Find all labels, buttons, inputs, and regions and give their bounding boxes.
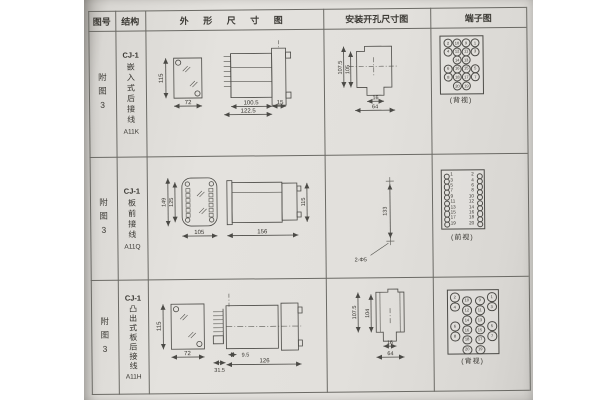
header-install: 安装开孔尺寸图 — [323, 12, 430, 26]
terminal-pin: 1 — [487, 292, 497, 302]
terminal-pin: 6 — [450, 322, 460, 332]
front-view — [174, 58, 202, 98]
dim-inner-height: 105 — [345, 65, 351, 74]
structure-code: A11Q — [124, 243, 140, 250]
structure-model: CJ-1 — [122, 51, 138, 60]
terminal-number: 19 — [451, 221, 462, 226]
dim-front-height: 115 — [157, 321, 163, 331]
terminal-pin: 19 — [475, 345, 485, 355]
grid-line — [90, 153, 528, 158]
terminal-pin: 19 — [462, 81, 471, 90]
terminal-view-label-row3: (背视) — [443, 356, 503, 367]
terminal-pin: 3 — [471, 47, 480, 56]
structure-model: CJ-1 — [124, 186, 140, 195]
terminal-pin: 4 — [444, 47, 453, 56]
cell-fig-no-row1: 附图3 — [89, 32, 115, 155]
grid-line — [526, 7, 531, 391]
header-fig-no: 图号 — [88, 15, 115, 28]
structure-code: A11K — [124, 129, 139, 136]
header-structure: 结构 — [115, 14, 145, 27]
dim-side-length: 156 — [257, 229, 268, 235]
structure-code: A11H — [126, 373, 142, 380]
cell-structure-row2: CJ-1 板前接线 A11Q — [118, 158, 147, 277]
terminal-pin: 10 — [452, 38, 461, 47]
grid-line — [88, 27, 526, 32]
dim-hole-pitch: 133 — [383, 207, 389, 216]
terminal-pin: 20 — [462, 345, 472, 355]
install-drawing-row1: 107.5 105 16 64 — [336, 39, 422, 115]
dim-offset: 9.5 — [242, 352, 250, 358]
terminal-view-label-row1: (背视) — [433, 95, 489, 106]
dim-comb-width: 31.5 — [214, 368, 225, 374]
dim-front-width: 72 — [184, 351, 191, 357]
terminal-pin: 8 — [450, 332, 460, 342]
dim-total-length: 122.5 — [241, 108, 257, 114]
dim-outer-height: 149 — [161, 198, 167, 207]
terminal-pin: 12 — [462, 306, 472, 316]
structure-type: 嵌入式后接线 — [125, 63, 137, 126]
dim-body-length: 100.5 — [244, 100, 260, 106]
dim-hole-note: 2-Φ5 — [355, 257, 367, 263]
terminal-number: 1 — [450, 173, 461, 178]
terminal-pin: 7 — [471, 73, 480, 82]
dim-opening-width: 64 — [372, 104, 378, 110]
terminal-view-label-row2: (前视) — [434, 232, 490, 243]
terminal-pin: 9 — [475, 296, 485, 306]
dim-body-length: 126 — [260, 358, 271, 364]
header-outline: 外 形 尺 寸 图 — [145, 13, 323, 28]
side-view — [213, 293, 303, 351]
install-drawing-row2: 133 2-Φ5 — [348, 171, 429, 267]
outline-drawing-row2: 149 125 105 156 115 — [152, 168, 323, 262]
terminal-pin: 13 — [462, 56, 471, 65]
dim-flange-depth: 15 — [277, 100, 284, 106]
outline-drawing-row3: 115 72 31.5 9.5 126 — [153, 288, 324, 380]
terminal-pin: 8 — [444, 73, 453, 82]
dim-width: 105 — [194, 230, 205, 236]
terminal-pin: 4 — [450, 302, 460, 312]
terminal-pin: 1 — [470, 38, 479, 47]
terminal-pin — [477, 221, 483, 227]
terminal-pin: 15 — [475, 325, 485, 335]
structure-type: 凸出式板后接线 — [127, 305, 139, 372]
grid-line — [92, 390, 530, 395]
side-view — [227, 180, 301, 225]
terminal-diagram-row2: 1234567891011121314151617181920 — [441, 169, 486, 229]
cell-structure-row1: CJ-1 嵌入式后接线 A11K — [116, 31, 145, 154]
terminal-pin: 17 — [475, 335, 485, 345]
terminal-pin: 14 — [462, 315, 472, 325]
cell-fig-no-row2: 附图3 — [91, 159, 117, 278]
front-view — [171, 304, 204, 349]
outline-drawing-row1: 115 72 100.5 15 122.5 — [148, 40, 299, 121]
terminal-pin: 5 — [487, 322, 497, 332]
fig-no-text: 附图3 — [97, 197, 109, 239]
dim-front-height: 115 — [159, 73, 165, 83]
dim-slot-width: 16 — [387, 340, 393, 346]
dim-inner-height: 125 — [169, 198, 175, 207]
terminal-pin: 9 — [461, 38, 470, 47]
dim-slot-width: 16 — [372, 95, 378, 101]
terminal-pin: 20 — [453, 81, 462, 90]
dim-front-width: 72 — [185, 100, 192, 106]
dim-opening-width: 64 — [387, 351, 393, 357]
document-page: 图号 结构 外 形 尺 寸 图 安装开孔尺寸图 端子图 附图3 CJ-1 嵌入式… — [0, 0, 600, 400]
terminal-pin: 2 — [450, 292, 460, 302]
terminal-pin — [444, 222, 450, 228]
terminal-pin: 7 — [487, 331, 497, 341]
terminal-pin: 14 — [453, 56, 462, 65]
cell-structure-row3: CJ-1 凸出式板后接线 A11H — [119, 281, 148, 392]
terminal-diagram-row3: 2109141211314136161558181772019 — [447, 289, 500, 354]
terminal-number: 20 — [463, 221, 474, 226]
grid-line — [91, 276, 529, 281]
terminal-pin: 3 — [487, 302, 497, 312]
header-terminal: 端子图 — [430, 11, 526, 25]
terminal-pin: 11 — [475, 306, 485, 316]
side-view — [223, 40, 291, 106]
terminal-pin: 10 — [462, 296, 472, 306]
structure-type: 板前接线 — [126, 198, 137, 240]
structure-model: CJ-1 — [125, 294, 141, 303]
fig-no-text: 附图3 — [99, 316, 111, 358]
grid-line — [323, 9, 328, 393]
front-view — [182, 178, 217, 226]
terminal-pin: 18 — [462, 335, 472, 345]
terminal-diagram-row1: 2109141211314136161558181772019 — [439, 35, 484, 94]
dim-outer-height: 107.5 — [352, 306, 358, 320]
table-sheet: 图号 结构 外 形 尺 寸 图 安装开孔尺寸图 端子图 附图3 CJ-1 嵌入式… — [0, 0, 600, 400]
terminal-pin: 2 — [443, 39, 452, 48]
terminal-pin: 16 — [462, 325, 472, 335]
dim-side-height: 115 — [301, 198, 307, 207]
fig-no-text: 附图3 — [96, 72, 108, 114]
dim-outer-height: 107.5 — [338, 61, 344, 75]
dim-inner-height: 104 — [365, 309, 371, 318]
terminal-pin: 13 — [475, 315, 485, 325]
install-drawing-row3: 107.5 104 16 64 — [346, 284, 432, 375]
cell-fig-no-row3: 附图3 — [92, 282, 118, 393]
